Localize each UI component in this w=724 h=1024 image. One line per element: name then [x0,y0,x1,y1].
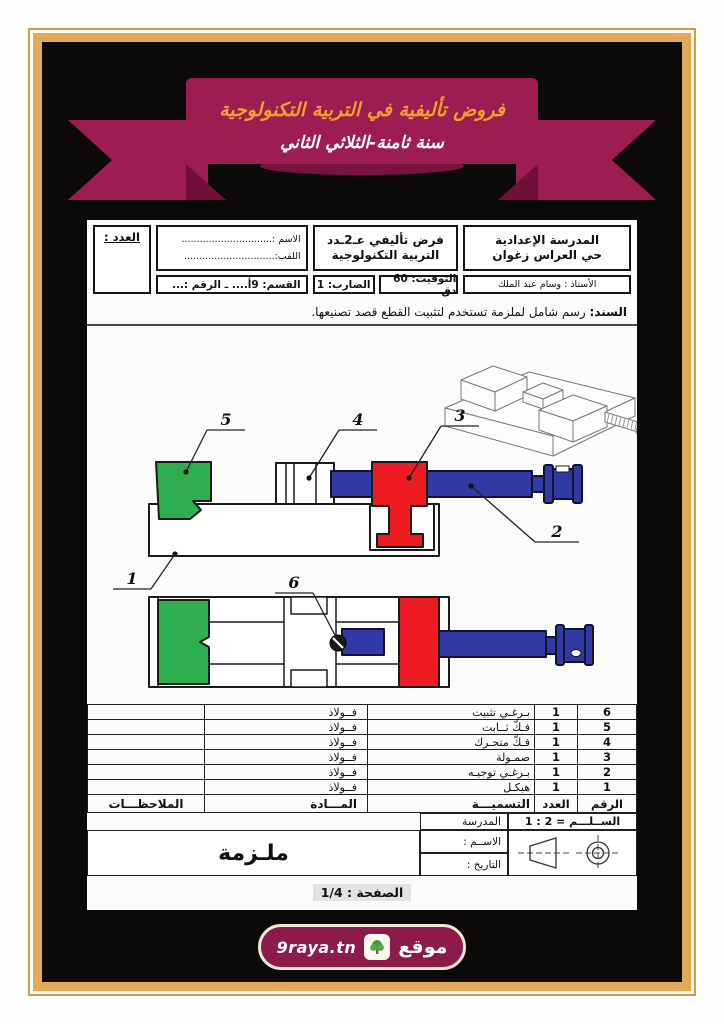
header-notes: الملاحظـــات [88,795,205,813]
school-cell: المدرسة [420,813,508,830]
part-notes [88,720,205,735]
part-name: بـرغـي تثبيت [368,705,535,720]
parts-table: 6 1 بـرغـي تثبيت فــولاذ 5 1 فـكّ ثــابت… [87,704,637,813]
callout-1: 1 [126,569,137,588]
name-cell: الاســم : [420,830,508,853]
black-backdrop: فروض تأليفية في التربية التكنولوجية سنة … [33,33,691,991]
exam-title-1: فرض تأليفي عـ2ـدد [327,233,444,248]
site-logo[interactable]: 9raya.tn موقع [258,924,467,970]
school-name: المدرسة الإعدادية [495,233,599,248]
page-number-line: الصفحة : 1/4 [87,876,637,910]
table-row: 1 1 هيكـل فــولاذ [88,780,637,795]
part-number: 5 [578,720,637,735]
banner-title: فروض تأليفية في التربية التكنولوجية [219,96,506,121]
exam-meta-row: التوقيت: 60 دق الضارب: 1 [313,275,459,294]
tree-icon [368,938,386,956]
surname-field: اللقب:.............................. [163,248,301,265]
part-number: 1 [578,780,637,795]
part-qty: 1 [535,705,578,720]
part-material: فــولاذ [205,720,368,735]
header-name: التسميـــة [368,795,535,813]
part-notes [88,705,205,720]
part-qty: 1 [535,720,578,735]
exam-title-2: التربية التكنولوجية [332,248,440,263]
support-line: السند: رسم شامل لملزمة تستخدم لتثبيت الق… [87,298,637,326]
logo-domain-text: 9raya.tn [277,938,357,957]
part-title-cell: ملـزمة [87,830,420,876]
part-number: 4 [578,735,637,750]
header-number: الرقم [578,795,637,813]
part-qty: 1 [535,750,578,765]
date-cell: التاريخ : [420,853,508,876]
gold-frame-outer: فروض تأليفية في التربية التكنولوجية سنة … [28,28,696,996]
footer: 9raya.tn موقع [42,924,682,970]
banner-subtitle: سنة ثامنة-الثلاثي الثاني [280,133,445,153]
logo-tree-box [364,934,390,960]
name-field: الاسم :.............................. [163,231,301,248]
part-name: فـكّ متحـرك [368,735,535,750]
callout-3: 3 [454,406,465,425]
isometric-vise-sketch [445,366,637,456]
projection-symbol-icon [514,833,632,873]
student-name-box: الاسم :.............................. ال… [156,225,308,271]
side-view [149,462,582,556]
duration-box: التوقيت: 60 دق [379,275,459,294]
callout-5: 5 [220,410,231,429]
title-ribbon: فروض تأليفية في التربية التكنولوجية سنة … [48,42,676,214]
part-qty: 1 [535,765,578,780]
part-material: فــولاذ [205,735,368,750]
part-number: 6 [578,705,637,720]
student-column: الاسم :.............................. ال… [156,225,308,294]
part-notes [88,780,205,795]
exam-column: فرض تأليفي عـ2ـدد التربية التكنولوجية ال… [313,225,459,294]
callout-6: 6 [288,573,299,592]
part-name: صمـولة [368,750,535,765]
page-number: الصفحة : 1/4 [313,884,412,901]
table-row: 2 1 بـرغـي توجيـه فــولاذ [88,765,637,780]
class-box: القسم: 9أ.... ـ الرقم :... [156,275,308,294]
part-name: هيكـل [368,780,535,795]
header-material: المـــادة [205,795,368,813]
part-material: فــولاذ [205,765,368,780]
scale-cell: الســلـــم = 2 : 1 [508,813,637,830]
top-view [149,597,593,687]
part-name: بـرغـي توجيـه [368,765,535,780]
part-notes [88,750,205,765]
projection-cell [508,830,637,876]
part-name: فـكّ ثــابت [368,720,535,735]
table-row: 4 1 فـكّ متحـرك فــولاذ [88,735,637,750]
title-block: الســلـــم = 2 : 1 المدرسة الاســم : الت… [87,813,637,876]
part-material: فــولاذ [205,780,368,795]
part-notes [88,735,205,750]
support-text: رسم شامل لملزمة تستخدم لتثبيت القطع قصد … [311,305,589,319]
coefficient-box: الضارب: 1 [313,275,375,294]
grade-box: العدد : [93,225,151,294]
part-qty: 1 [535,780,578,795]
part-number: 3 [578,750,637,765]
exam-title-box: فرض تأليفي عـ2ـدد التربية التكنولوجية [313,225,459,271]
part-material: فــولاذ [205,750,368,765]
logo-site-word: موقع [398,936,447,958]
part-notes [88,765,205,780]
header-qty: العدد [535,795,578,813]
technical-drawing: 5 4 3 2 1 6 [87,326,637,704]
table-header-row: الرقم العدد التسميـــة المـــادة الملاحظ… [88,795,637,813]
teacher-name: الأستاذ : وسام عبد الملك [498,279,596,290]
teacher-box: الأستاذ : وسام عبد الملك [463,275,631,294]
exam-sheet: المدرسة الإعدادية حي العراس زغوان الأستا… [87,220,637,910]
school-name-box: المدرسة الإعدادية حي العراس زغوان [463,225,631,271]
title-block-spacer [87,813,420,830]
part-qty: 1 [535,735,578,750]
table-row: 5 1 فـكّ ثــابت فــولاذ [88,720,637,735]
callout-4: 4 [352,410,363,429]
table-row: 6 1 بـرغـي تثبيت فــولاذ [88,705,637,720]
grade-column: العدد : [93,225,151,294]
school-column: المدرسة الإعدادية حي العراس زغوان الأستا… [463,225,631,294]
callout-2: 2 [550,522,562,541]
school-location: حي العراس زغوان [492,248,602,263]
part-material: فــولاذ [205,705,368,720]
part-number: 2 [578,765,637,780]
class-field: القسم: 9أ.... ـ الرقم :... [172,279,301,291]
support-label: السند: [590,305,627,319]
exam-header: المدرسة الإعدادية حي العراس زغوان الأستا… [87,220,637,298]
page: فروض تأليفية في التربية التكنولوجية سنة … [0,0,724,1024]
table-row: 3 1 صمـولة فــولاذ [88,750,637,765]
